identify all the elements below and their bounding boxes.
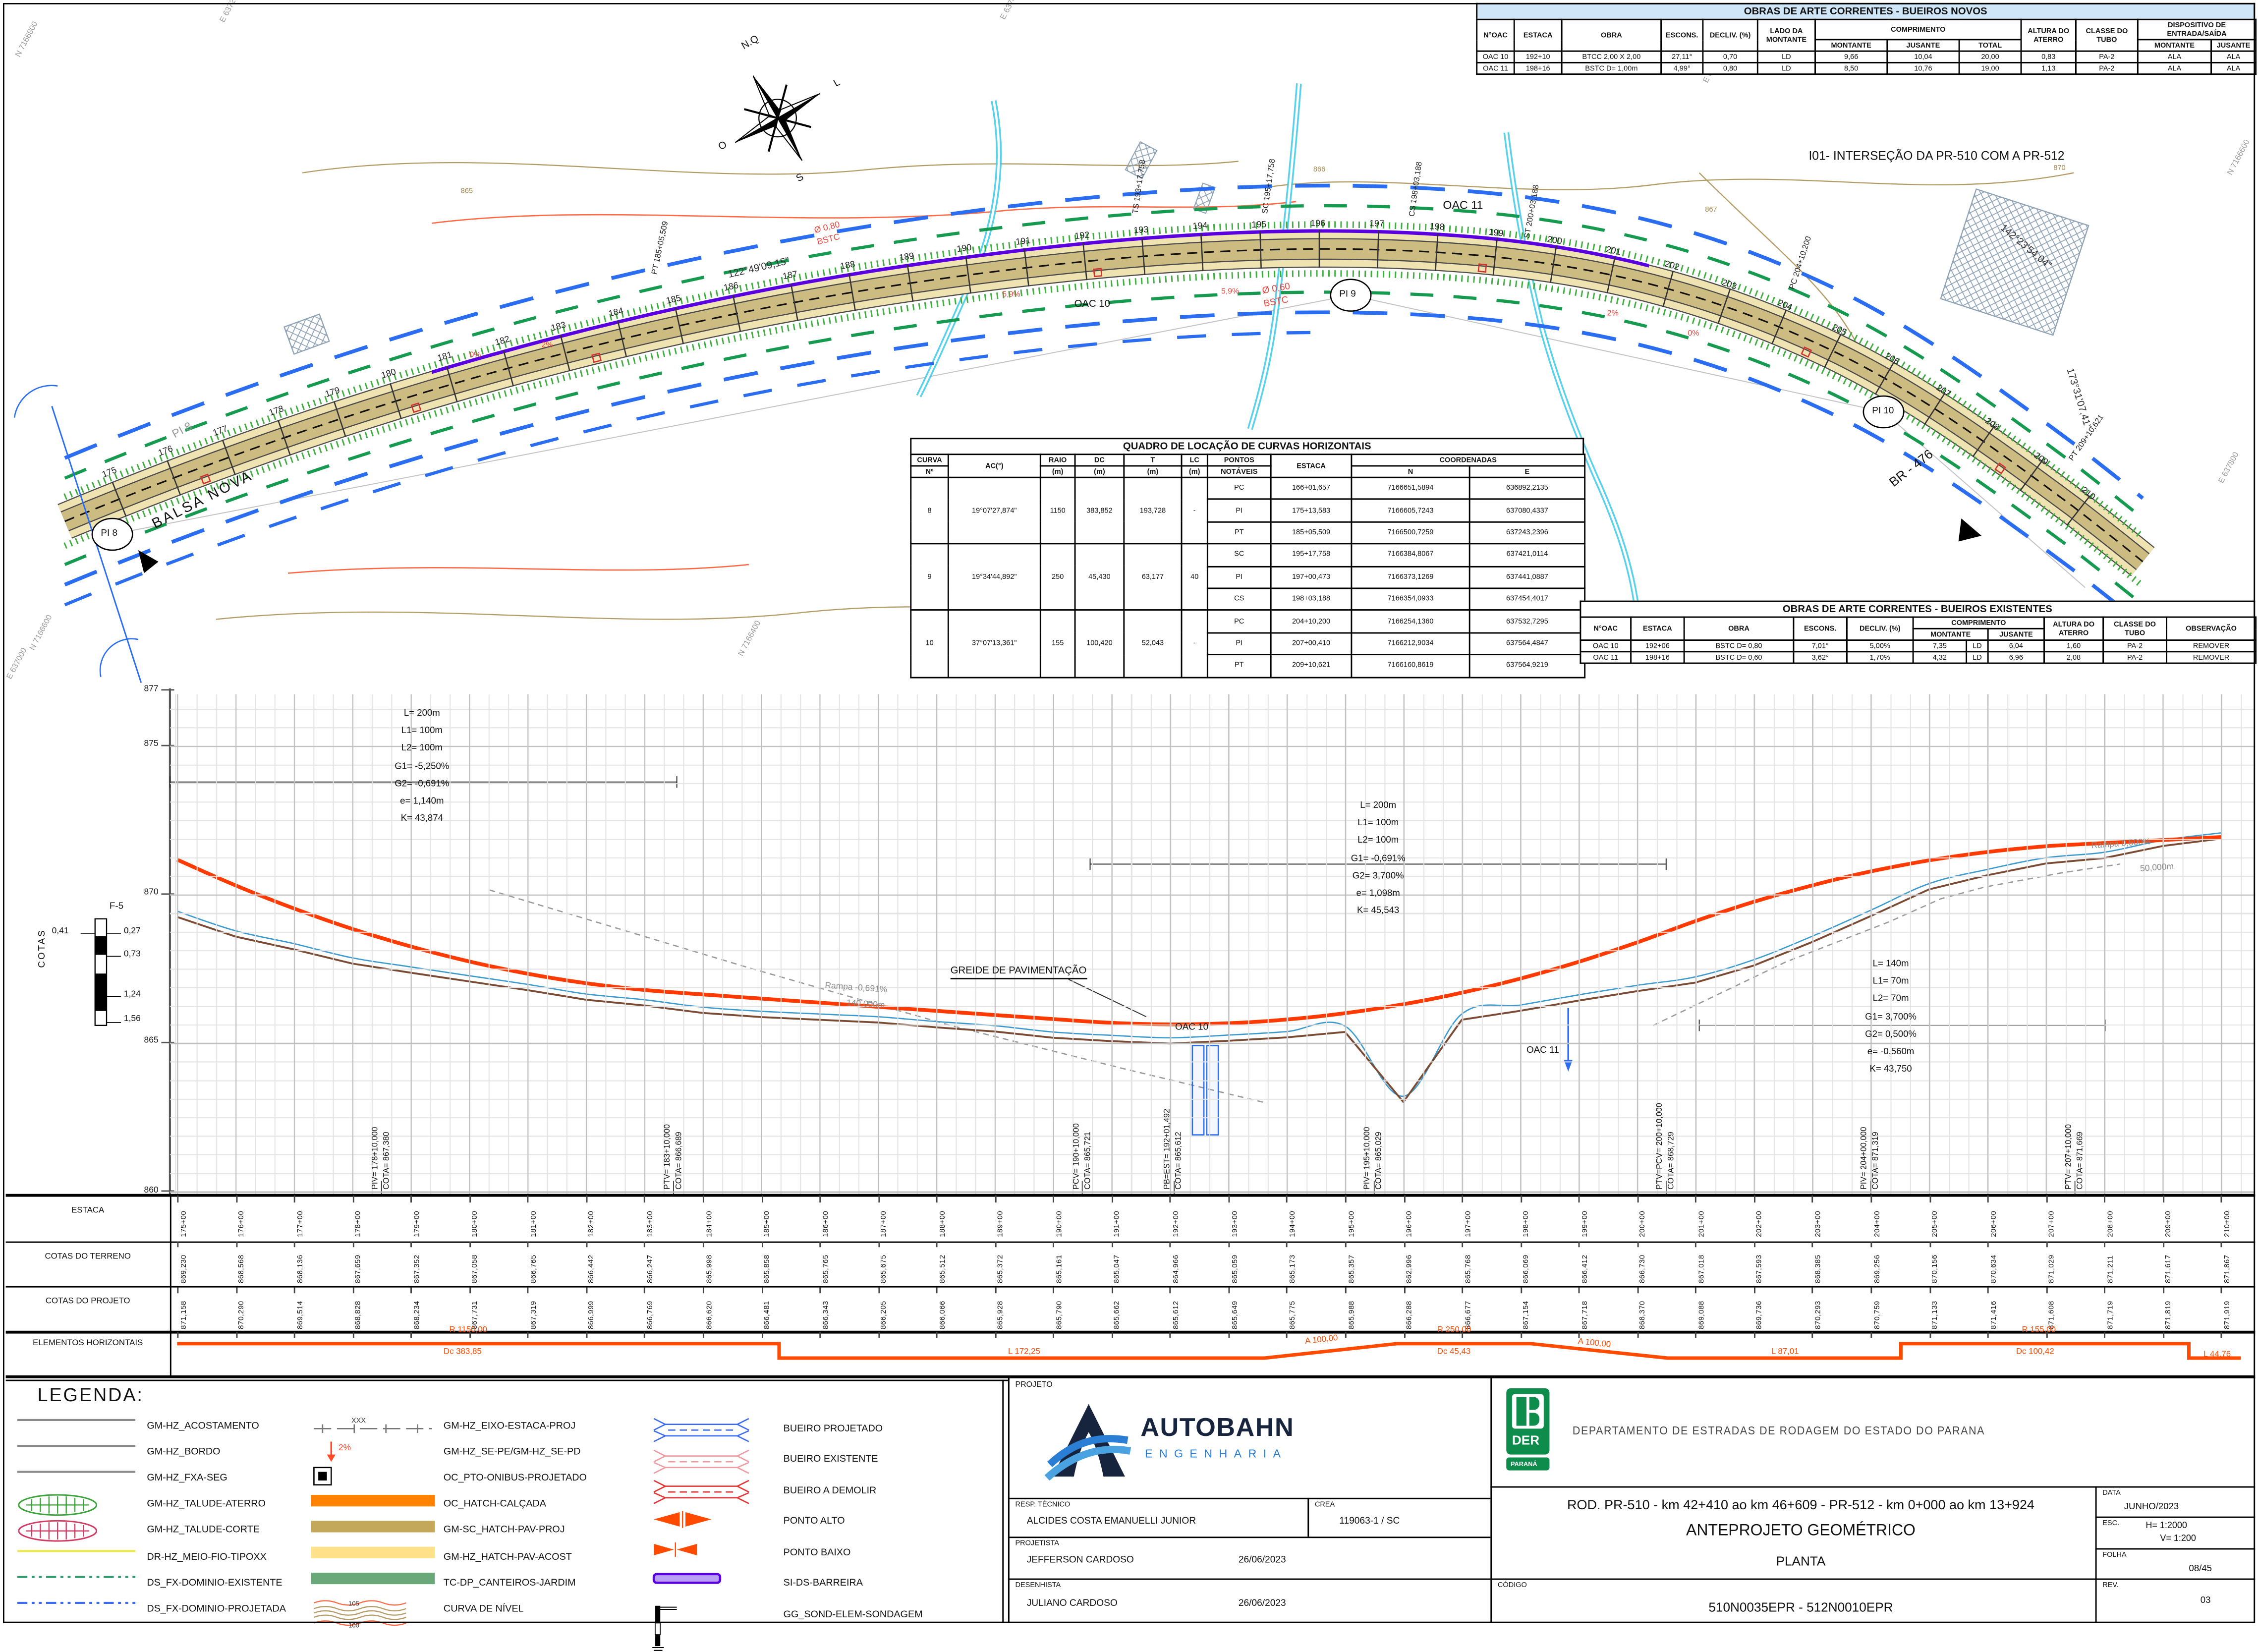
col-header: NOTÁVEIS xyxy=(1207,466,1271,477)
estaca-cell: 188+00 xyxy=(940,1211,949,1237)
cell: REMOVER xyxy=(2166,640,2256,652)
cell: PT xyxy=(1207,655,1271,677)
vpi-label: PCV= 190+10,000 xyxy=(1072,1123,1081,1190)
plan-station-label: 199 xyxy=(1488,227,1504,239)
vertical-curve-note: e= 1,098m xyxy=(1292,889,1465,899)
table-row: OAC 10192+06BSTC D= 0,807,01°5,00%7,35LD… xyxy=(1581,640,2256,652)
legend-item-label: GM-HZ_BORDO xyxy=(147,1447,220,1457)
terreno-cell: 867,058 xyxy=(473,1254,481,1283)
vertical-curve-note: L1= 70m xyxy=(1805,977,1977,987)
table-row: 919°34'44,892"25045,43063,17740SC195+17,… xyxy=(911,544,1585,566)
data-label: DATA xyxy=(2102,1490,2121,1499)
legend-item-label: SI-DS-BARREIRA xyxy=(784,1579,863,1589)
table-row: OAC 11198+16BSTC D= 0,603,62°1,70%4,32LD… xyxy=(1581,652,2256,663)
terreno-cell: 871,211 xyxy=(2108,1255,2116,1283)
projeto-cell: 865,649 xyxy=(1232,1300,1241,1329)
legend-item-label: GM-HZ_HATCH-PAV-ACOST xyxy=(444,1552,572,1562)
pi-circle-label: PI 8 xyxy=(101,528,117,539)
plan-annotation: I01- INTERSEÇÃO DA PR-510 COM A PR-512 xyxy=(1808,150,2064,164)
cell: 6,96 xyxy=(1988,652,2044,663)
cell: 63,177 xyxy=(1124,544,1182,610)
projeto-cell: 869,088 xyxy=(1699,1300,1707,1329)
projeto-cell: 866,481 xyxy=(765,1300,773,1329)
borehole-depth: 0,73 xyxy=(124,951,141,961)
cell: PA-2 xyxy=(2076,51,2138,62)
projeto-cell: 868,370 xyxy=(1640,1300,1649,1329)
desenhista-value: JULIANO CARDOSO xyxy=(1027,1598,1118,1609)
cell: PA-2 xyxy=(2076,62,2138,74)
oac11-label: OAC 11 xyxy=(1526,1045,1559,1056)
col-header: OBSERVAÇÃO xyxy=(2166,617,2256,640)
projetista-value: JEFFERSON CARDOSO xyxy=(1027,1555,1134,1566)
cell: PA-2 xyxy=(2103,640,2167,652)
estaca-cell: 190+00 xyxy=(1057,1211,1065,1237)
cell: 198+16 xyxy=(1514,62,1562,74)
terreno-cell: 865,372 xyxy=(998,1254,1007,1283)
cell: 7166160,8619 xyxy=(1352,655,1469,677)
plan-annotation: 867 xyxy=(1705,207,1717,216)
row-header: COTAS DO PROJETO xyxy=(11,1298,164,1309)
cell: BTCC 2,00 X 2,00 xyxy=(1562,51,1661,62)
cell: 100,420 xyxy=(1075,611,1124,677)
legend-item-label: GM-HZ_TALUDE-ATERRO xyxy=(147,1499,266,1509)
plan-station-label: 200 xyxy=(1547,234,1563,247)
projeto-cell: 865,928 xyxy=(998,1300,1007,1329)
legend-item: SI-DS-BARREIRA xyxy=(651,1572,863,1595)
cell: 637080,4337 xyxy=(1469,500,1584,522)
cell: PA-2 xyxy=(2103,652,2167,663)
projeto-cell: 866,999 xyxy=(590,1300,598,1329)
estaca-cell: 179+00 xyxy=(414,1211,423,1237)
title-block: PROJETO AUTOBAHN ENGENHARIA RESP. TÉCNIC… xyxy=(1008,1377,2255,1623)
legend-item-label: GG_SOND-ELEM-SONDAGEM xyxy=(784,1609,923,1619)
cell: 637421,0114 xyxy=(1469,544,1584,566)
cell: 5,00% xyxy=(1847,640,1913,652)
legend-item: GM-HZ_ACOSTAMENTO xyxy=(14,1414,259,1437)
terreno-cell: 870,156 xyxy=(1933,1254,1941,1283)
cell: 27,11° xyxy=(1661,51,1703,62)
legend: LEGENDA: GM-HZ_ACOSTAMENTOGM-HZ_BORDOGM-… xyxy=(6,1380,1008,1623)
cell: OAC 10 xyxy=(1581,640,1631,652)
row-header: COTAS DO TERRENO xyxy=(11,1253,164,1264)
logo-sub: ENGENHARIA xyxy=(1145,1447,1287,1461)
projeto-label: PROJETO xyxy=(1015,1381,1052,1390)
terreno-cell: 865,059 xyxy=(1232,1254,1241,1283)
col-header: N°OAC xyxy=(1581,617,1631,640)
terreno-cell: 867,593 xyxy=(1757,1254,1766,1283)
elemento-label: L 172,25 xyxy=(1008,1347,1040,1357)
borehole-depth: 1,56 xyxy=(124,1015,141,1025)
terreno-cell: 862,996 xyxy=(1407,1254,1415,1283)
projeto-cell: 868,828 xyxy=(356,1300,364,1329)
col-header: (m) xyxy=(1075,466,1124,477)
vpi-cota-label: COTA= 865,721 xyxy=(1084,1132,1093,1190)
terreno-cell: 866,247 xyxy=(648,1254,657,1283)
legend-item-label: OC_HATCH-CALÇADA xyxy=(444,1499,546,1509)
esc-v: V= 1:200 xyxy=(2160,1534,2196,1544)
cotas-axis-label: COTAS xyxy=(38,929,49,968)
rev-label: REV. xyxy=(2102,1583,2119,1591)
cell: BSTC D= 0,80 xyxy=(1684,640,1794,652)
rev-value: 03 xyxy=(2201,1595,2211,1606)
cell: 10,04 xyxy=(1887,51,1959,62)
vpi-label: PB=EST= 192+01,492 xyxy=(1164,1109,1174,1190)
legend-item: GG_SOND-ELEM-SONDAGEM xyxy=(651,1603,922,1626)
cell: 637454,4017 xyxy=(1469,588,1584,611)
projeto-cell: 871,416 xyxy=(1991,1300,1999,1329)
terreno-cell: 865,173 xyxy=(1291,1254,1299,1283)
vpi-label: PIV= 178+10,000 xyxy=(371,1127,381,1190)
cell: 37°07'13,361" xyxy=(948,611,1040,677)
projeto-cell: 866,620 xyxy=(706,1300,715,1329)
cell: 198+16 xyxy=(1631,652,1685,663)
cell: 9,66 xyxy=(1815,51,1887,62)
estaca-cell: 199+00 xyxy=(1582,1211,1591,1237)
col-header: TOTAL xyxy=(1959,40,2021,51)
table-line xyxy=(6,1331,2256,1333)
cell: OAC 11 xyxy=(1581,652,1631,663)
estaca-cell: 195+00 xyxy=(1349,1211,1357,1237)
legend-item: GM-SC_HATCH-PAV-PROJ xyxy=(311,1519,565,1542)
table-line xyxy=(6,1286,2256,1288)
cell: 637564,4847 xyxy=(1469,632,1584,655)
estaca-cell: 191+00 xyxy=(1115,1211,1124,1237)
cell: 7166212,9034 xyxy=(1352,632,1469,655)
col-header: PONTOS xyxy=(1207,455,1271,466)
table-curvas-horizontais: QUADRO DE LOCAÇÃO DE CURVAS HORIZONTAIS … xyxy=(910,438,1584,678)
legend-item: BUEIRO EXISTENTE xyxy=(651,1448,878,1471)
vertical-curve-note: e= 1,140m xyxy=(336,797,508,807)
projeto-cell: 867,154 xyxy=(1524,1300,1532,1329)
legend-item: XXXGM-HZ_EIXO-ESTACA-PROJ xyxy=(311,1414,576,1437)
legend-item: BUEIRO PROJETADO xyxy=(651,1417,883,1440)
col-header: DISPOSITIVO DE ENTRADA/SAÍDA xyxy=(2138,19,2256,40)
vpi-label: PIV= 195+10,000 xyxy=(1364,1127,1373,1190)
vpi-cota-label: COTA= 866,689 xyxy=(675,1132,684,1190)
vertical-curve-note: L= 140m xyxy=(1805,959,1977,969)
plan-annotation: 0% xyxy=(1688,330,1699,339)
projeto-cell: 867,319 xyxy=(531,1300,540,1329)
svg-text:2%: 2% xyxy=(339,1442,351,1452)
bueiros-novos: N°OAC ESTACA OBRA ESCONS. DECLIV. (%) LA… xyxy=(1476,19,2257,75)
estaca-cell: 175+00 xyxy=(181,1211,189,1237)
col-header: N°OAC xyxy=(1477,19,1515,51)
cell: PT xyxy=(1207,522,1271,544)
terreno-cell: 866,765 xyxy=(531,1254,540,1283)
plan-station-label: 198 xyxy=(1429,222,1444,233)
col-header: MONTANTE xyxy=(1913,628,1988,640)
projeto-cell: 870,293 xyxy=(1816,1300,1824,1329)
table-bueiros-existentes: OBRAS DE ARTE CORRENTES - BUEIROS EXISTE… xyxy=(1580,601,2255,664)
legend-item: 2%GM-HZ_SE-PE/GM-HZ_SE-PD xyxy=(311,1440,581,1463)
legend-item-label: CURVA DE NÍVEL xyxy=(444,1604,524,1614)
plan-station-label: 197 xyxy=(1370,220,1385,230)
projeto-cell: 867,731 xyxy=(473,1300,481,1329)
cell: - xyxy=(1182,477,1207,544)
col-header: AC(°) xyxy=(948,455,1040,477)
col-header: ESTACA xyxy=(1631,617,1685,640)
cell: 8 xyxy=(911,477,949,544)
cell: 7166373,1269 xyxy=(1352,566,1469,588)
terreno-cell: 871,867 xyxy=(2225,1254,2233,1283)
terreno-cell: 865,858 xyxy=(765,1254,773,1283)
cell: 195+17,758 xyxy=(1271,544,1352,566)
terreno-cell: 868,568 xyxy=(239,1254,248,1283)
projeto-cell: 865,790 xyxy=(1057,1300,1065,1329)
terreno-cell: 865,765 xyxy=(823,1254,832,1283)
drawing-sheet: OBRAS DE ARTE CORRENTES - BUEIROS NOVOS … xyxy=(0,0,2258,1626)
legend-item: PONTO ALTO xyxy=(651,1510,845,1533)
vertical-curve-note: K= 43,874 xyxy=(336,814,508,824)
vpi-label: PTV=PCV= 200+10,000 xyxy=(1656,1103,1665,1190)
col-header: Nº xyxy=(911,466,949,477)
legend-item-label: PONTO BAIXO xyxy=(784,1547,851,1557)
estaca-cell: 210+00 xyxy=(2225,1211,2233,1237)
estaca-cell: 181+00 xyxy=(531,1211,540,1237)
col-header: CLASSE DO TUBO xyxy=(2103,617,2167,640)
legend-item: GM-HZ_HATCH-PAV-ACOST xyxy=(311,1545,572,1568)
terreno-cell: 867,018 xyxy=(1699,1254,1707,1283)
projeto-cell: 865,612 xyxy=(1174,1300,1182,1329)
cell: 10 xyxy=(911,611,949,677)
col-header: ESTACA xyxy=(1514,19,1562,51)
terreno-cell: 870,634 xyxy=(1991,1254,1999,1283)
estaca-cell: 192+00 xyxy=(1174,1211,1182,1237)
cell: 2,08 xyxy=(2044,652,2103,663)
vertical-curve-note: G1= -5,250% xyxy=(336,761,508,772)
vpi-label: PTV= 183+10,000 xyxy=(664,1124,673,1190)
cell: ALA xyxy=(2211,51,2256,62)
estaca-cell: 187+00 xyxy=(882,1211,890,1237)
cell: 1150 xyxy=(1040,477,1075,544)
estaca-cell: 183+00 xyxy=(648,1211,657,1237)
legend-item: PONTO BAIXO xyxy=(651,1541,850,1564)
legend-item-label: GM-HZ_EIXO-ESTACA-PROJ xyxy=(444,1421,575,1430)
cell: 7166354,0933 xyxy=(1352,588,1469,611)
vertical-curve-note: L= 200m xyxy=(336,709,508,719)
plan-annotation: 2% xyxy=(542,342,553,350)
projeto-cell: 865,775 xyxy=(1291,1300,1299,1329)
greide-label: GREIDE DE PAVIMENTAÇÃO xyxy=(951,967,1087,979)
plan-annotation: 870 xyxy=(2053,166,2065,174)
terreno-cell: 864,966 xyxy=(1174,1254,1182,1283)
legend-item-label: GM-HZ_TALUDE-CORTE xyxy=(147,1526,260,1536)
resp-value: ALCIDES COSTA EMANUELLI JUNIOR xyxy=(1027,1517,1196,1528)
legend-item-label: GM-HZ_SE-PE/GM-HZ_SE-PD xyxy=(444,1447,581,1457)
vertical-curve-note: L2= 100m xyxy=(336,743,508,754)
col-header: LC xyxy=(1182,455,1207,466)
table-title: OBRAS DE ARTE CORRENTES - BUEIROS NOVOS xyxy=(1476,3,2255,19)
cell: 6,04 xyxy=(1988,640,2044,652)
cell: 197+00,473 xyxy=(1271,566,1352,588)
terreno-cell: 866,442 xyxy=(590,1254,598,1283)
vpi-cota-label: COTA= 867,380 xyxy=(383,1132,393,1190)
legend-item: BUEIRO A DEMOLIR xyxy=(651,1479,876,1502)
plan-annotation: 2% xyxy=(1607,310,1619,319)
col-header: DC xyxy=(1075,455,1124,466)
col-header: N xyxy=(1352,466,1469,477)
terreno-cell: 865,047 xyxy=(1115,1254,1124,1283)
legend-item: OC_HATCH-CALÇADA xyxy=(311,1493,546,1516)
projeto-cell: 870,759 xyxy=(1874,1300,1883,1329)
estaca-cell: 180+00 xyxy=(473,1211,481,1237)
plan-station-label: 195 xyxy=(1251,219,1267,230)
col-header: DECLIV. (%) xyxy=(1847,617,1913,640)
legend-item: DS_FX-DOMINIO-EXISTENTE xyxy=(14,1572,282,1595)
vertical-curve-note: e= -0,560m xyxy=(1805,1047,1977,1057)
row-header: ELEMENTOS HORIZONTAIS xyxy=(11,1339,164,1350)
col-header: JUSANTE xyxy=(1988,628,2044,640)
plan-annotation: 0% xyxy=(469,351,481,360)
cell: 637243,2396 xyxy=(1469,522,1584,544)
projeto-cell: 871,133 xyxy=(1933,1300,1941,1329)
cell: 209+10,621 xyxy=(1271,655,1352,677)
crea-label: CREA xyxy=(1315,1502,1335,1511)
col-header: COMPRIMENTO xyxy=(1913,617,2044,628)
vertical-curve-note: L2= 70m xyxy=(1805,994,1977,1005)
legend-item: 105100CURVA DE NÍVEL xyxy=(311,1597,524,1620)
cell: CS xyxy=(1207,588,1271,611)
col-header: T xyxy=(1124,455,1182,466)
terreno-cell: 866,069 xyxy=(1524,1254,1532,1283)
terreno-cell: 867,659 xyxy=(356,1254,364,1283)
pi-circle-label: PI 9 xyxy=(1339,289,1356,300)
cell: 4,32 xyxy=(1913,652,1967,663)
plan-annotation: 5,9% xyxy=(1221,288,1239,297)
cell: 19°34'44,892" xyxy=(948,544,1040,610)
cell: BSTC D= 1,00m xyxy=(1562,62,1661,74)
cell: LD xyxy=(1757,51,1815,62)
cell: ALA xyxy=(2138,51,2211,62)
estaca-cell: 182+00 xyxy=(590,1211,598,1237)
cell: 3,62° xyxy=(1794,652,1847,663)
estaca-cell: 202+00 xyxy=(1757,1211,1766,1237)
projetista-label: PROJETISTA xyxy=(1015,1541,1059,1549)
elemento-label: Dc 383,85 xyxy=(444,1348,482,1358)
vertical-curve-note: L= 200m xyxy=(1292,801,1465,811)
col-header: RAIO xyxy=(1040,455,1075,466)
cell: 40 xyxy=(1182,544,1207,610)
cell: 192+10 xyxy=(1514,51,1562,62)
col-header: ALTURA DO ATERRO xyxy=(2021,19,2076,51)
estaca-cell: 197+00 xyxy=(1466,1211,1474,1237)
cell: OAC 11 xyxy=(1477,62,1515,74)
cell: 0,80 xyxy=(1703,62,1757,74)
cell: 1,60 xyxy=(2044,640,2103,652)
logo-name: AUTOBAHN xyxy=(1140,1413,1294,1442)
projeto-cell: 866,769 xyxy=(648,1300,657,1329)
projeto-cell: 865,988 xyxy=(1349,1300,1357,1329)
legend-item: OC_PTO-ONIBUS-PROJETADO xyxy=(311,1467,587,1489)
col-header: MONTANTE xyxy=(1815,40,1887,51)
legend-title: LEGENDA: xyxy=(38,1385,144,1407)
col-header: CLASSE DO TUBO xyxy=(2076,19,2138,51)
estaca-cell: 201+00 xyxy=(1699,1211,1707,1237)
cell: 637564,9219 xyxy=(1469,655,1584,677)
table-row: OAC 10192+10BTCC 2,00 X 2,0027,11°0,70LD… xyxy=(1477,51,2256,62)
folha-label: FOLHA xyxy=(2102,1552,2126,1561)
estaca-cell: 200+00 xyxy=(1640,1211,1649,1237)
elemento-label: L 87,01 xyxy=(1771,1347,1799,1357)
cell: 1,70% xyxy=(1847,652,1913,663)
legend-item-label: DS_FX-DOMINIO-PROJETADA xyxy=(147,1604,286,1614)
cell: 7166605,7243 xyxy=(1352,500,1469,522)
cell: 19,00 xyxy=(1959,62,2021,74)
projeto-cell: 867,718 xyxy=(1582,1300,1591,1329)
vpi-cota-label: COTA= 871,669 xyxy=(2077,1132,2086,1190)
cell: 7,35 xyxy=(1913,640,1967,652)
desenhista-label: DESENHISTA xyxy=(1015,1583,1061,1591)
vertical-curve-note: G1= 3,700% xyxy=(1805,1012,1977,1022)
vpi-cota-label: COTA= 871,319 xyxy=(1872,1132,1881,1190)
projeto-cell: 866,205 xyxy=(882,1300,890,1329)
elemento-label: Dc 45,43 xyxy=(1437,1348,1470,1358)
plan-annotation: OAC 10 xyxy=(1074,299,1110,311)
plan-station-label: 191 xyxy=(1015,236,1031,248)
cota-axis-tick: 875 xyxy=(138,741,159,750)
data-value: JUNHO/2023 xyxy=(2124,1502,2179,1513)
road-title: ROD. PR-510 - km 42+410 ao km 46+609 - P… xyxy=(1509,1498,2092,1513)
elemento-label: L 44,76 xyxy=(2203,1351,2231,1360)
estaca-cell: 203+00 xyxy=(1816,1211,1824,1237)
plan-annotation: 865 xyxy=(461,189,473,197)
legend-item: GM-HZ_FXA-SEG xyxy=(14,1467,227,1489)
col-header: ESCONS. xyxy=(1794,617,1847,640)
borehole-depth: 0,27 xyxy=(124,927,141,937)
cell: 383,852 xyxy=(1075,477,1124,544)
cota-axis-tick: 865 xyxy=(138,1037,159,1047)
estaca-cell: 206+00 xyxy=(1991,1211,1999,1237)
cell: 7166384,8067 xyxy=(1352,544,1469,566)
der-sigla: DER xyxy=(1512,1433,1539,1448)
col-header: ALTURA DO ATERRO xyxy=(2044,617,2103,640)
vertical-curve-note: K= 45,543 xyxy=(1292,906,1465,916)
der-logo: DER PARANÁ xyxy=(1506,1388,1552,1478)
projeto-cell: 871,819 xyxy=(2166,1300,2175,1329)
cell: 637441,0887 xyxy=(1469,566,1584,588)
estaca-cell: 208+00 xyxy=(2108,1211,2116,1237)
legend-item-label: GM-HZ_FXA-SEG xyxy=(147,1473,227,1483)
table-bueiros-novos: OBRAS DE ARTE CORRENTES - BUEIROS NOVOS … xyxy=(1476,3,2255,75)
legend-item-label: PONTO ALTO xyxy=(784,1517,845,1527)
cell: 193,728 xyxy=(1124,477,1182,544)
projeto-cell: 868,234 xyxy=(414,1300,423,1329)
crea-value: 119063-1 / SC xyxy=(1339,1517,1400,1528)
elemento-label: R 1150,00 xyxy=(450,1326,487,1336)
projeto-cell: 871,919 xyxy=(2225,1300,2233,1329)
estaca-cell: 176+00 xyxy=(239,1211,248,1237)
vertical-curve-note: G2= 3,700% xyxy=(1292,871,1465,881)
vertical-curve-note: L1= 100m xyxy=(336,726,508,737)
vpi-label: PIV= 204+00,000 xyxy=(1861,1127,1870,1190)
estaca-cell: 193+00 xyxy=(1232,1211,1241,1237)
terreno-cell: 865,675 xyxy=(882,1254,890,1283)
borehole-label: F-5 xyxy=(110,902,123,912)
cota-axis-tick: 870 xyxy=(138,889,159,899)
projeto-cell: 869,514 xyxy=(298,1300,306,1329)
horizontal-elements-art xyxy=(177,1344,2241,1358)
cell: PI xyxy=(1207,500,1271,522)
cell: 7166500,7259 xyxy=(1352,522,1469,544)
dept-name: DEPARTAMENTO DE ESTRADAS DE RODAGEM DO E… xyxy=(1573,1424,1985,1438)
col-header: COORDENADAS xyxy=(1352,455,1585,466)
cell: 45,430 xyxy=(1075,544,1124,610)
terreno-cell: 865,998 xyxy=(706,1254,715,1283)
cell: 185+05,509 xyxy=(1271,522,1352,544)
vpi-cota-label: COTA= 865,029 xyxy=(1376,1132,1385,1190)
projeto-cell: 870,290 xyxy=(239,1300,248,1329)
vpi-cota-label: COTA= 868,729 xyxy=(1668,1132,1677,1190)
